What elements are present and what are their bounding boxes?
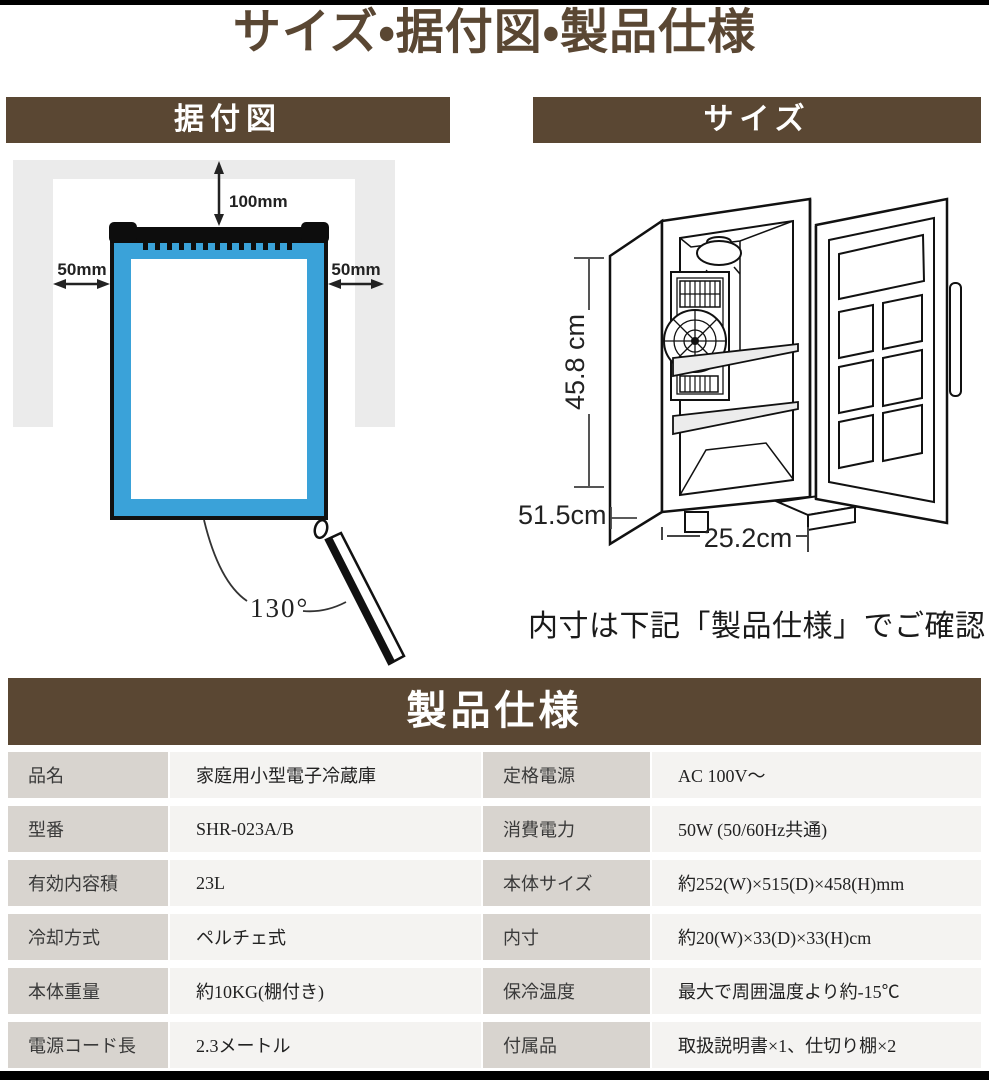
- fridge-top-view: [109, 222, 329, 518]
- door-angle-label: 130°: [250, 593, 309, 623]
- inner-size-note: 内寸は下記「製品仕様」でご確認: [528, 601, 988, 645]
- cooling-unit: [664, 272, 729, 400]
- right-clearance-label: 50mm: [331, 260, 380, 279]
- page-title: サイズ・据付図・製品仕様: [0, 2, 989, 64]
- height-dimension-label: 45.8 cm: [560, 314, 590, 410]
- left-clearance-arrow: [53, 279, 110, 289]
- open-door: [313, 519, 404, 664]
- spec-value: 2.3メートル: [170, 1022, 481, 1068]
- size-diagram: 45.8 cm: [510, 150, 989, 560]
- spec-label: 定格電源: [483, 752, 650, 798]
- spec-label: 消費電力: [483, 806, 650, 852]
- spec-label: 保冷温度: [483, 968, 650, 1014]
- door-handle: [950, 283, 961, 396]
- spec-value: SHR-023A/B: [170, 806, 481, 852]
- bottom-border-strip: [0, 1071, 989, 1080]
- vent-grille-top: [680, 281, 720, 307]
- table-row: 有効内容積 23L 本体サイズ 約252(W)×515(D)×458(H)mm: [8, 860, 981, 906]
- spec-value: 50W (50/60Hz共通): [652, 806, 981, 852]
- spec-value: 家庭用小型電子冷蔵庫: [170, 752, 481, 798]
- installation-diagram: 100mm 50mm 50mm 130°: [0, 150, 470, 690]
- spec-label: 内寸: [483, 914, 650, 960]
- top-clearance-arrow: [214, 161, 224, 226]
- spec-label: 品名: [8, 752, 168, 798]
- spec-label: 有効内容積: [8, 860, 168, 906]
- table-row: 本体重量 約10KG(棚付き) 保冷温度 最大で周囲温度より約-15℃: [8, 968, 981, 1014]
- depth-dimension-label: 51.5cm: [518, 500, 607, 530]
- spec-label: 本体重量: [8, 968, 168, 1014]
- spec-label: 冷却方式: [8, 914, 168, 960]
- vent-grille-bottom: [680, 376, 718, 392]
- top-clearance-label: 100mm: [229, 192, 288, 211]
- spec-label: 付属品: [483, 1022, 650, 1068]
- spec-section-header: 製品仕様: [8, 678, 981, 745]
- size-section-header: サイズ: [533, 97, 981, 143]
- spec-table: 品名 家庭用小型電子冷蔵庫 定格電源 AC 100V〜 型番 SHR-023A/…: [8, 752, 981, 1068]
- spec-value: 約10KG(棚付き): [170, 968, 481, 1014]
- spec-label: 型番: [8, 806, 168, 852]
- fridge-door: [810, 199, 961, 523]
- spec-value: 取扱説明書×1、仕切り棚×2: [652, 1022, 981, 1068]
- spec-value: AC 100V〜: [652, 752, 981, 798]
- table-row: 電源コード長 2.3メートル 付属品 取扱説明書×1、仕切り棚×2: [8, 1022, 981, 1068]
- width-dimension-label: 25.2cm: [704, 523, 793, 553]
- spec-value: ペルチェ式: [170, 914, 481, 960]
- spec-value: 約20(W)×33(D)×33(H)cm: [652, 914, 981, 960]
- spec-label: 電源コード長: [8, 1022, 168, 1068]
- left-clearance-label: 50mm: [57, 260, 106, 279]
- door-swing-arc-2: [303, 602, 346, 611]
- spec-value: 最大で周囲温度より約-15℃: [652, 968, 981, 1014]
- spec-label: 本体サイズ: [483, 860, 650, 906]
- table-row: 型番 SHR-023A/B 消費電力 50W (50/60Hz共通): [8, 806, 981, 852]
- installation-section-header: 据付図: [6, 97, 450, 143]
- table-row: 冷却方式 ペルチェ式 内寸 約20(W)×33(D)×33(H)cm: [8, 914, 981, 960]
- table-row: 品名 家庭用小型電子冷蔵庫 定格電源 AC 100V〜: [8, 752, 981, 798]
- product-spec-sheet: サイズ・据付図・製品仕様 据付図 サイズ: [0, 0, 989, 1080]
- door-swing-arc: [204, 520, 247, 601]
- spec-value: 約252(W)×515(D)×458(H)mm: [652, 860, 981, 906]
- spec-value: 23L: [170, 860, 481, 906]
